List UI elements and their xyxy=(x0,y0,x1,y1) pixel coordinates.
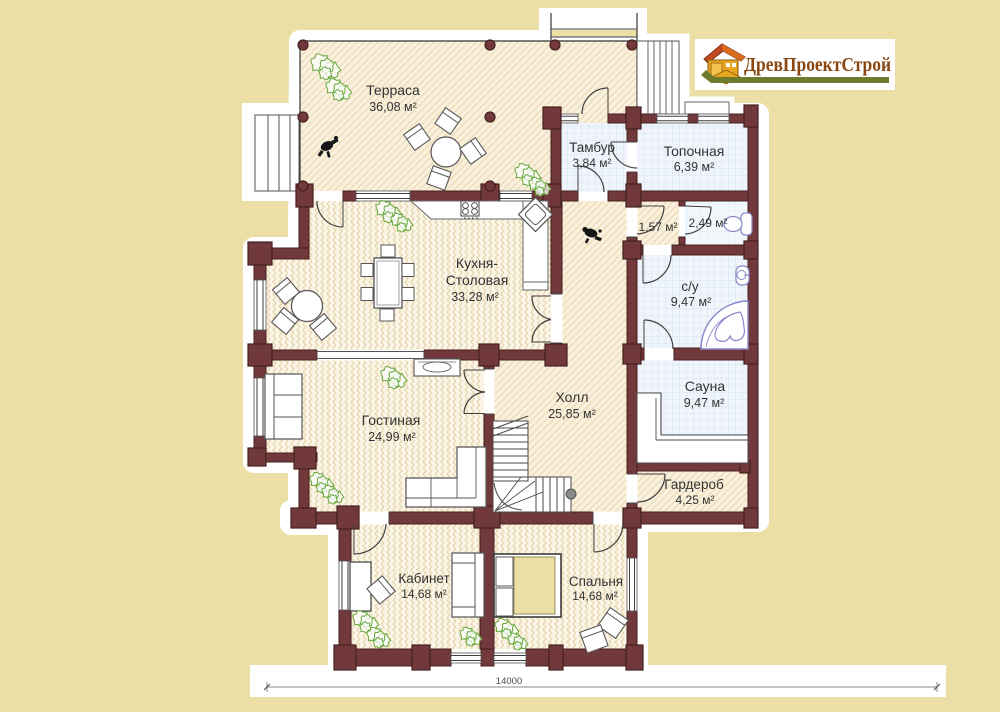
svg-text:24,99 м²: 24,99 м² xyxy=(368,430,416,444)
svg-text:Сауна: Сауна xyxy=(685,378,726,394)
svg-text:с/у: с/у xyxy=(681,279,699,294)
svg-text:Кабинет: Кабинет xyxy=(398,571,449,586)
svg-text:1,57 м²: 1,57 м² xyxy=(639,220,678,234)
svg-text:Спальня: Спальня xyxy=(569,574,623,589)
svg-text:Топочная: Топочная xyxy=(664,143,725,159)
svg-text:Гардероб: Гардероб xyxy=(664,477,724,492)
svg-text:Холл: Холл xyxy=(556,389,589,405)
svg-text:Гостиная: Гостиная xyxy=(362,412,421,428)
svg-text:Столовая: Столовая xyxy=(446,272,509,288)
svg-text:6,39 м²: 6,39 м² xyxy=(674,160,715,174)
svg-text:Кухня-: Кухня- xyxy=(456,255,498,271)
svg-text:2,49 м²: 2,49 м² xyxy=(689,216,728,230)
svg-text:Тамбур: Тамбур xyxy=(569,140,615,155)
svg-text:36,08 м²: 36,08 м² xyxy=(369,100,417,114)
svg-text:14,68 м²: 14,68 м² xyxy=(401,587,447,601)
svg-text:33,28 м²: 33,28 м² xyxy=(451,290,499,304)
svg-text:14,68 м²: 14,68 м² xyxy=(572,589,618,603)
svg-text:4,25 м²: 4,25 м² xyxy=(676,493,715,507)
svg-text:Терраса: Терраса xyxy=(366,82,420,98)
svg-text:14000: 14000 xyxy=(496,676,522,687)
svg-text:25,85 м²: 25,85 м² xyxy=(548,407,596,421)
svg-text:3,84 м²: 3,84 м² xyxy=(573,156,612,170)
svg-text:9,47 м²: 9,47 м² xyxy=(671,295,712,309)
svg-text:9,47 м²: 9,47 м² xyxy=(684,396,725,410)
svg-text:ДревПроектСтрой: ДревПроектСтрой xyxy=(744,54,891,76)
